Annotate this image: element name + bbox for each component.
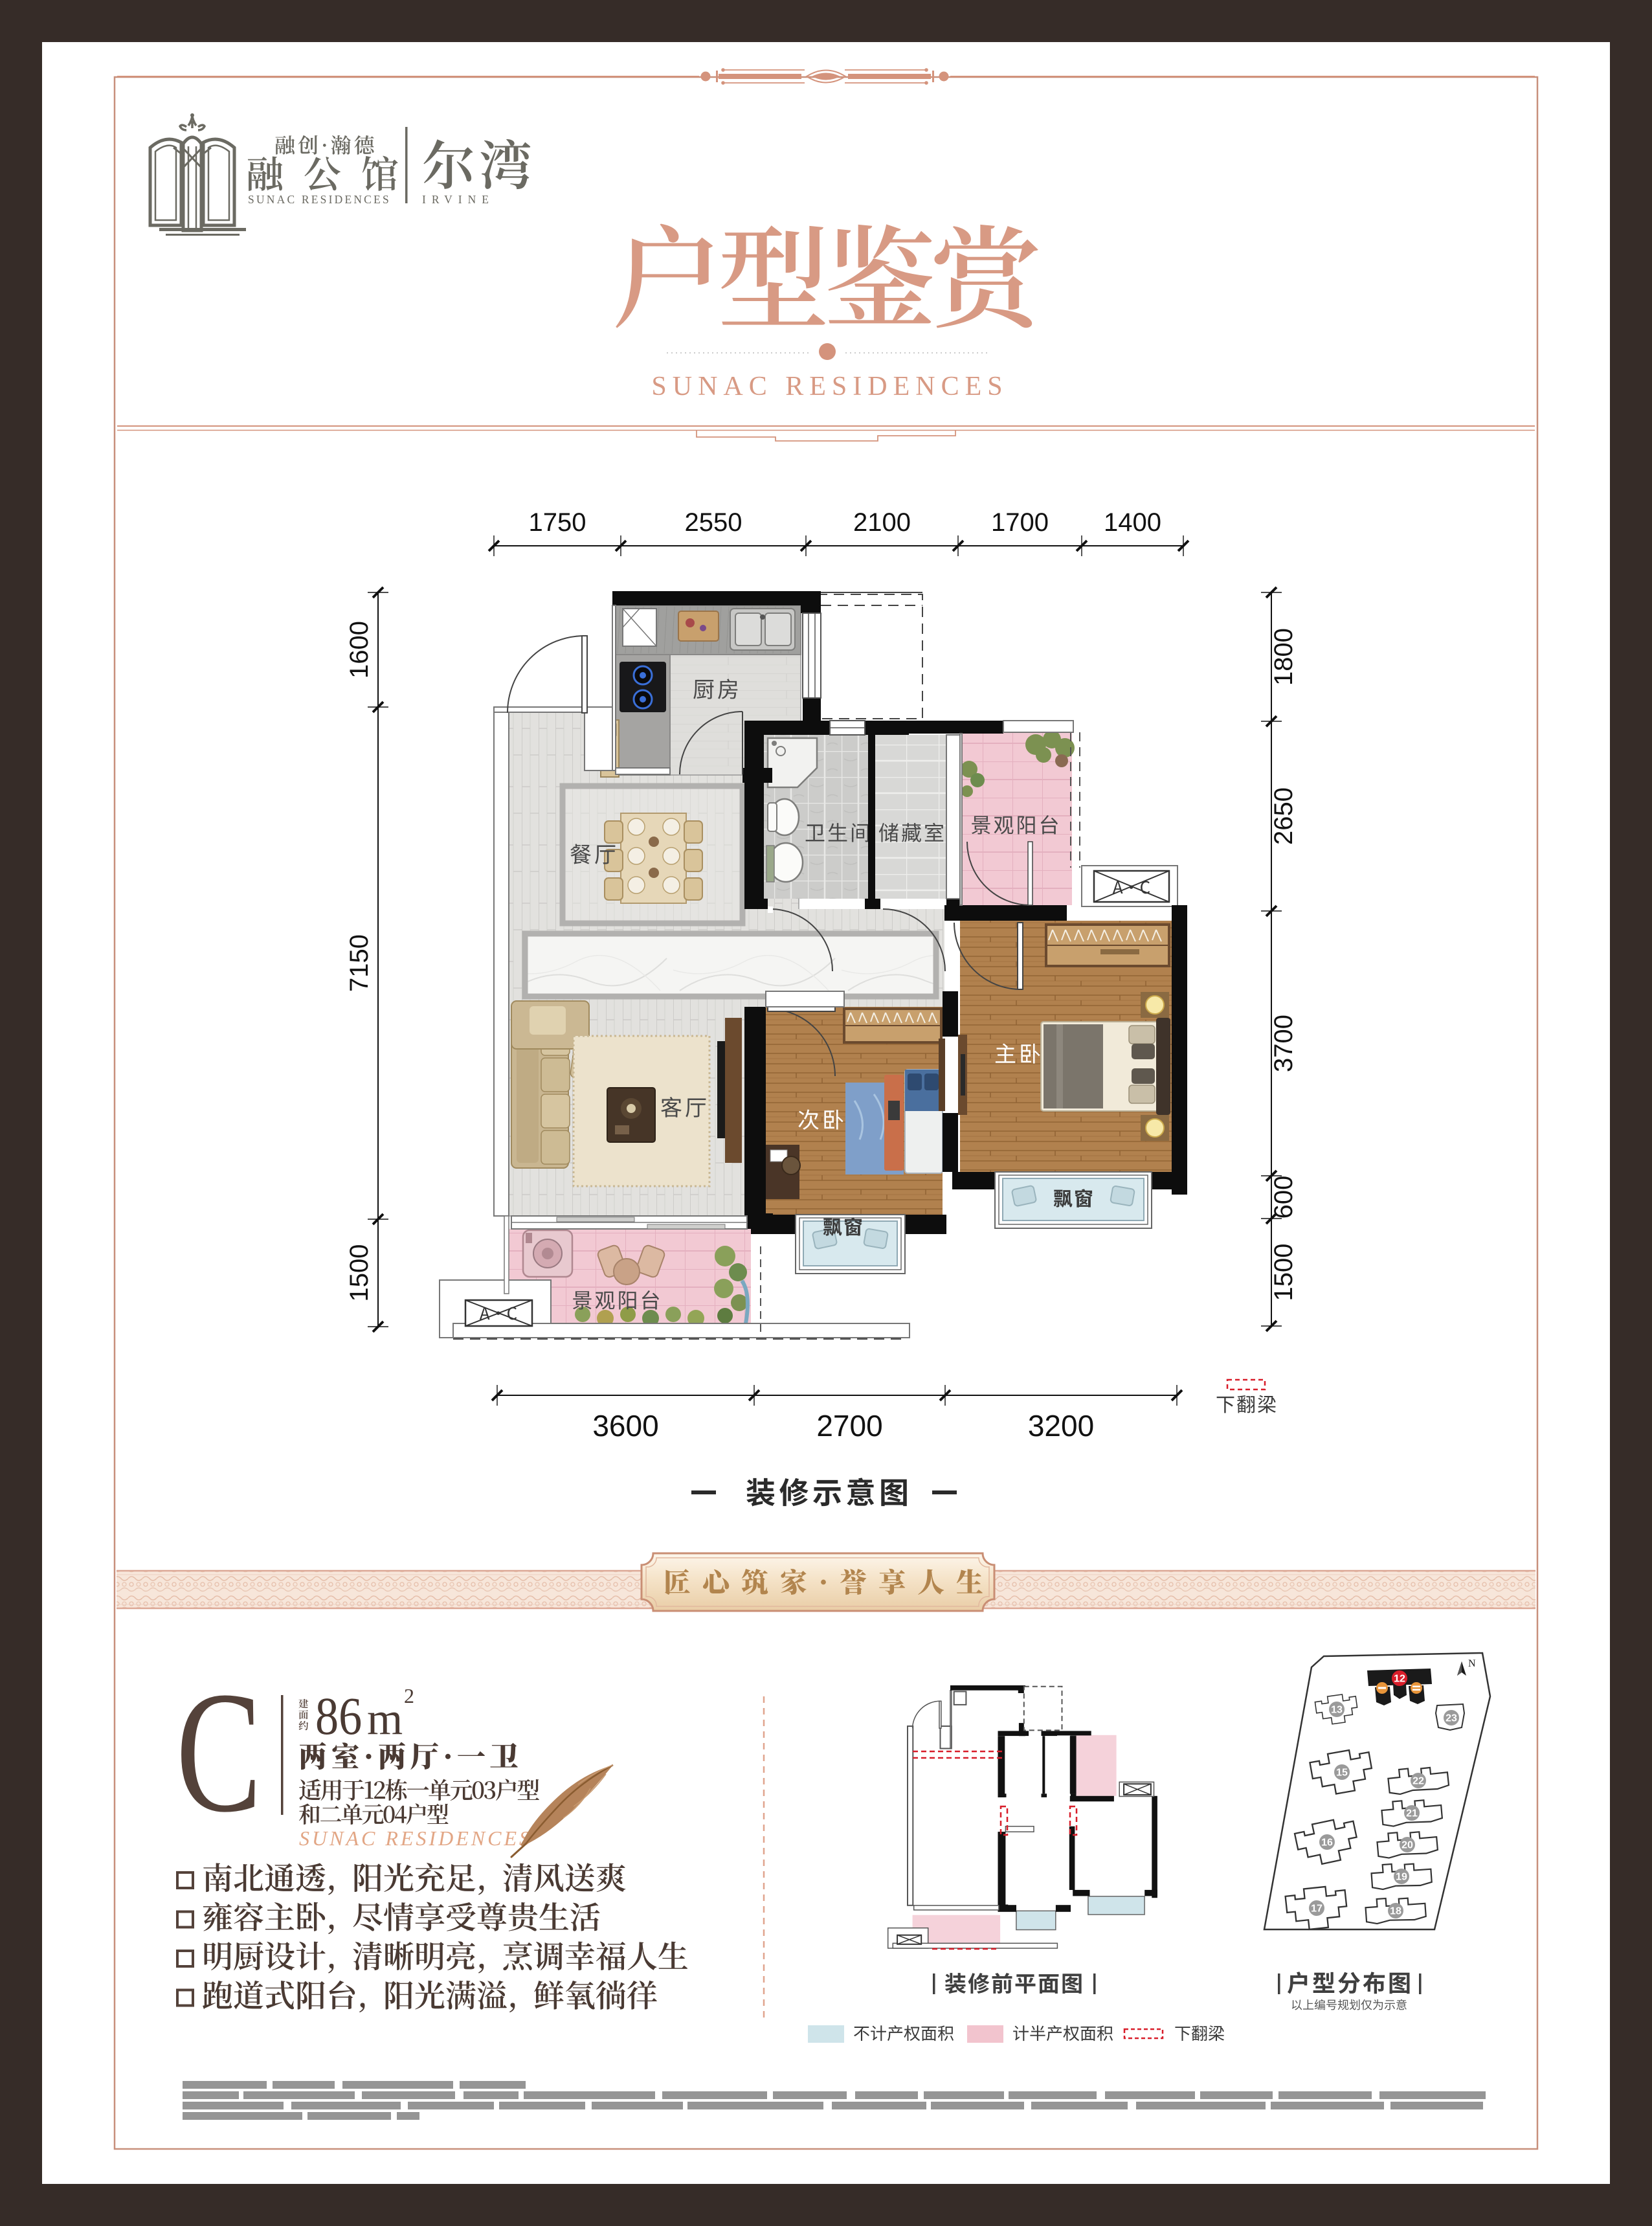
svg-text:1500: 1500 [1269,1244,1298,1301]
svg-text:C: C [176,1656,262,1848]
svg-text:2100: 2100 [853,508,911,537]
svg-text:2650: 2650 [1269,787,1298,845]
svg-text:17: 17 [1311,1904,1323,1915]
svg-text:m: m [367,1694,403,1744]
svg-text:1600: 1600 [345,621,374,679]
svg-text:86: 86 [315,1686,362,1746]
svg-text:16: 16 [1321,1838,1333,1849]
svg-text:18: 18 [1390,1906,1401,1917]
svg-text:19: 19 [1396,1872,1407,1883]
svg-text:600: 600 [1269,1176,1298,1219]
svg-text:7150: 7150 [345,934,374,992]
svg-text:1400: 1400 [1104,508,1161,537]
svg-text:1500: 1500 [345,1244,374,1302]
svg-text:1800: 1800 [1269,628,1298,686]
svg-text:13: 13 [1331,1705,1343,1716]
svg-text:2: 2 [404,1684,414,1707]
svg-text:1700: 1700 [991,508,1049,537]
svg-text:1750: 1750 [529,508,586,537]
svg-text:22: 22 [1412,1776,1424,1787]
svg-text:3200: 3200 [1028,1409,1094,1443]
svg-text:SUNAC RESIDENCES: SUNAC RESIDENCES [299,1827,532,1850]
svg-text:2700: 2700 [816,1409,882,1443]
svg-text:N: N [1468,1658,1476,1669]
svg-text:12: 12 [1394,1674,1405,1685]
svg-text:23: 23 [1445,1713,1457,1724]
svg-text:2550: 2550 [685,508,742,537]
svg-text:IRVINE: IRVINE [422,193,495,206]
svg-text:SUNAC RESIDENCES: SUNAC RESIDENCES [248,193,391,206]
svg-text:15: 15 [1336,1768,1348,1779]
svg-text:3700: 3700 [1269,1015,1298,1072]
svg-text:21: 21 [1406,1808,1418,1819]
svg-text:SUNAC RESIDENCES: SUNAC RESIDENCES [651,372,1008,401]
svg-text:20: 20 [1401,1840,1413,1851]
svg-text:3600: 3600 [592,1409,658,1443]
